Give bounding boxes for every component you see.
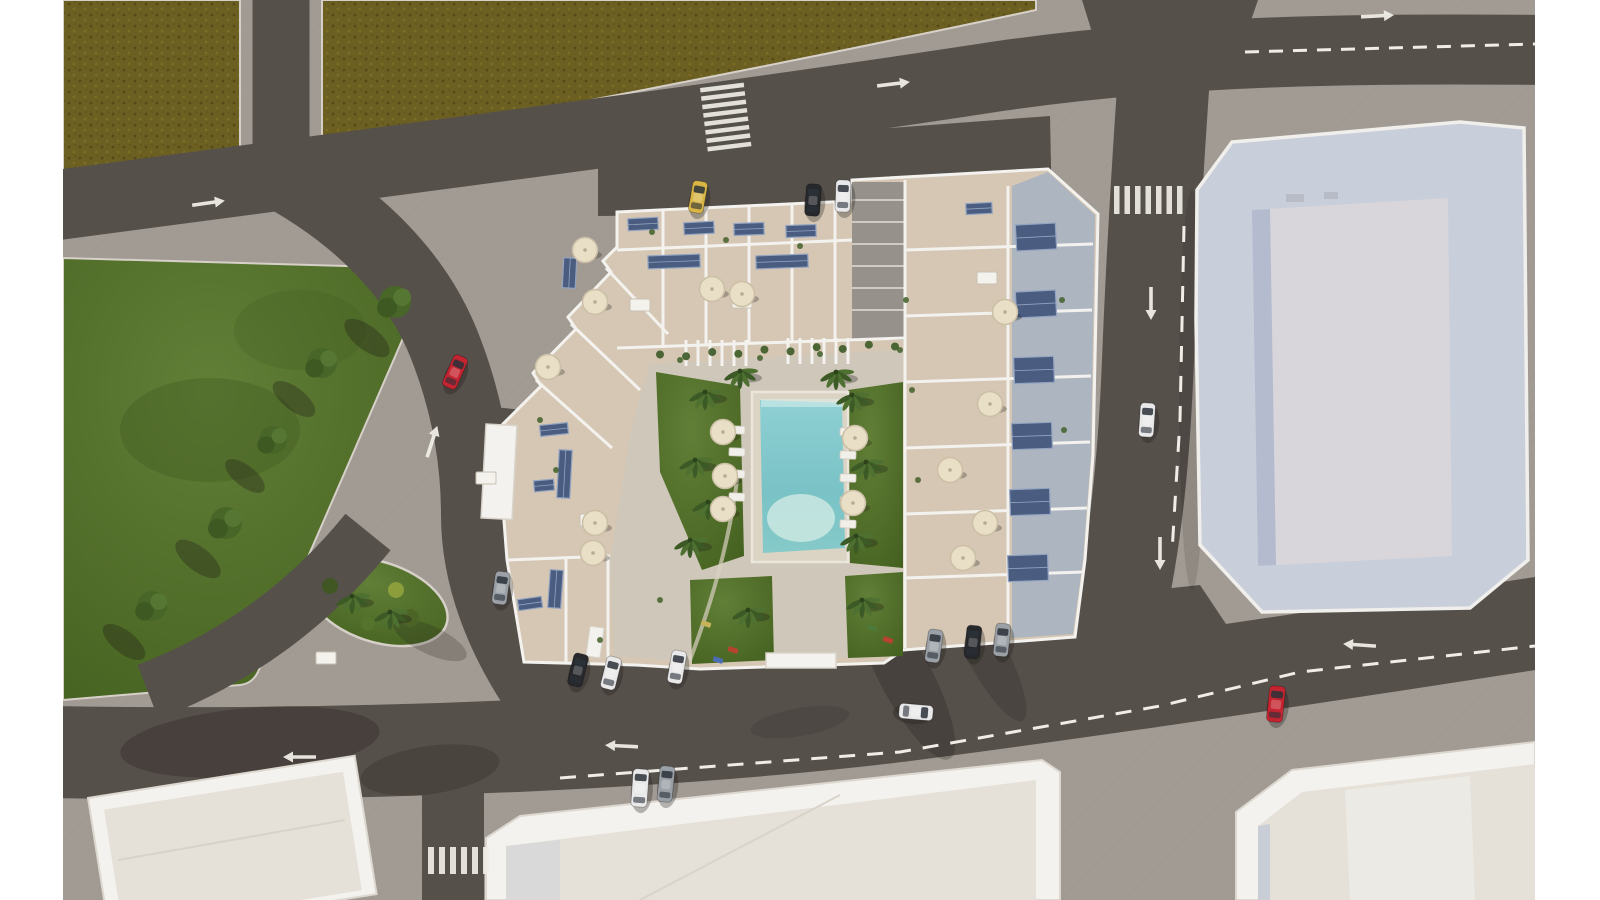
hedge-shrub — [734, 350, 742, 358]
hedge-shrub — [682, 352, 690, 360]
umbrella-pole — [1003, 310, 1007, 314]
terrace-table — [476, 472, 496, 484]
crosswalk-stripe — [1125, 186, 1131, 214]
table-top — [977, 272, 997, 284]
sun-lounger — [840, 451, 856, 460]
solar-panel — [628, 217, 659, 231]
umbrella-pole — [851, 501, 855, 505]
crosswalk-stripe — [428, 847, 434, 874]
crosswalk-stripe — [1135, 186, 1141, 214]
car-rear-window — [837, 202, 848, 208]
crosswalk-stripe — [450, 847, 456, 874]
crosswalk-stripe — [1177, 186, 1183, 214]
terrace-plant — [817, 351, 823, 357]
solar-panel — [734, 222, 764, 235]
car-windshield — [1142, 408, 1153, 416]
solar-panel — [557, 450, 572, 499]
palm-crown — [703, 390, 708, 395]
tree-canopy — [135, 602, 154, 621]
terrace-plant — [903, 297, 909, 303]
pool-steps — [761, 399, 842, 407]
terrace-table — [977, 272, 997, 284]
car-rear-window — [966, 648, 978, 655]
terrace-plant — [649, 229, 655, 235]
solar-panel — [1012, 422, 1053, 449]
car-rear-window — [659, 791, 671, 798]
umbrella-pole — [853, 436, 857, 440]
car-roof-highlight — [929, 641, 939, 651]
tree-canopy — [272, 428, 287, 443]
car-windshield — [968, 630, 980, 638]
car-roof-highlight — [496, 583, 506, 593]
car-roof-highlight — [635, 784, 646, 794]
car-rear-window — [633, 797, 645, 804]
bush — [322, 578, 338, 594]
roof-vent-2 — [1324, 192, 1338, 199]
umbrella-pole — [721, 430, 725, 434]
terrace-plant — [909, 387, 915, 393]
umbrella-pole — [583, 248, 587, 252]
terrace-plant — [597, 637, 603, 643]
palm-crown — [693, 458, 698, 463]
hedge-shrub — [839, 345, 847, 353]
umbrella-pole — [546, 365, 550, 369]
hedge-shrub — [865, 341, 873, 349]
car-windshield — [1271, 690, 1284, 698]
solar-panel — [684, 221, 715, 235]
car-rear-window — [1141, 427, 1152, 434]
palm-crown — [860, 598, 865, 603]
car-rear-window — [903, 705, 910, 716]
service-alley — [852, 182, 905, 340]
table-top — [630, 299, 650, 311]
palm-crown — [350, 594, 355, 599]
tree-canopy — [377, 298, 397, 318]
palm-crown — [688, 538, 693, 543]
tree-canopy — [151, 593, 168, 610]
terrace-plant — [915, 477, 921, 483]
hedge-shrub — [813, 343, 821, 351]
crosswalk-stripe — [483, 847, 489, 874]
crosswalk-stripe — [1156, 186, 1162, 214]
car-roof-highlight — [997, 636, 1007, 646]
solar-panel — [1015, 290, 1056, 318]
crosswalk-stripe — [1167, 186, 1173, 214]
car-roof-highlight — [911, 707, 921, 717]
roof-shade-west — [506, 840, 560, 900]
car-roof-highlight — [693, 192, 703, 202]
umbrella-pole — [593, 521, 597, 525]
car-windshield — [635, 774, 647, 782]
terrace-plant — [677, 357, 683, 363]
solar-panel — [548, 570, 564, 609]
scene-svg — [0, 0, 1600, 900]
terrace-table — [630, 299, 650, 311]
building-top-right-roof — [1252, 198, 1452, 566]
car-rear-window — [995, 646, 1007, 653]
solar-panel — [786, 224, 816, 237]
tree-canopy — [208, 519, 228, 539]
car-roof-highlight — [1271, 699, 1282, 709]
palm-crown — [738, 369, 743, 374]
aerial-render: Aerial 3D architectural render of a resi… — [0, 0, 1600, 900]
umbrella-pole — [710, 287, 714, 291]
pool-shallow-end — [767, 494, 835, 542]
tree-canopy — [257, 436, 274, 453]
palm-crown — [388, 610, 393, 615]
umbrella-pole — [721, 507, 725, 511]
crosswalk-stripe — [472, 847, 478, 874]
left-margin — [0, 0, 63, 900]
crosswalk-stripe — [1146, 186, 1152, 214]
umbrella-pole — [591, 551, 595, 555]
umbrella-pole — [961, 556, 965, 560]
tree-canopy — [224, 509, 242, 527]
car-roof-highlight — [1142, 416, 1152, 426]
palm-crown — [850, 393, 855, 398]
car-rear-window — [807, 206, 818, 213]
sun-lounger — [840, 474, 856, 483]
terrace-table — [316, 652, 336, 664]
umbrella-pole — [948, 468, 952, 472]
tree-canopy — [305, 359, 324, 378]
hedge-shrub — [787, 347, 795, 355]
solar-panel — [562, 258, 577, 289]
tree-canopy — [393, 288, 411, 306]
building-top-right — [1196, 122, 1528, 612]
umbrella-pole — [983, 521, 987, 525]
terrace-plant — [1059, 297, 1065, 303]
car-roof-highlight — [968, 638, 978, 648]
terrace-plant — [797, 243, 803, 249]
solar-panel — [1014, 356, 1055, 383]
palm-crown — [834, 370, 839, 375]
solar-panel — [756, 254, 808, 269]
car-rear-window — [1269, 711, 1282, 718]
solar-panel — [1010, 488, 1051, 515]
hedge-shrub — [708, 348, 716, 356]
solar-panel — [966, 202, 993, 214]
entrance-canopy — [766, 653, 836, 668]
table-top — [316, 652, 336, 664]
hedge-shrub — [760, 346, 768, 354]
roof-vent — [1286, 194, 1304, 202]
solar-panel — [534, 479, 555, 492]
palm-crown — [854, 534, 859, 539]
terrace-plant — [757, 355, 763, 361]
car-roof-highlight — [808, 196, 818, 206]
solar-panel — [648, 254, 700, 269]
swimming-pool — [752, 392, 848, 562]
tree-canopy — [321, 350, 338, 367]
umbrella-pole — [723, 474, 727, 478]
hedge-shrub — [656, 351, 664, 359]
table-top — [476, 472, 496, 484]
terrace-plant — [723, 237, 729, 243]
car-roof-highlight — [838, 192, 847, 201]
palm-crown — [706, 500, 711, 505]
palm-crown — [864, 460, 869, 465]
umbrella-pole — [740, 292, 744, 296]
bush — [361, 617, 375, 631]
solar-panel — [540, 423, 569, 437]
sun-lounger — [729, 448, 745, 457]
terrace-plant — [537, 417, 543, 423]
umbrella-pole — [988, 402, 992, 406]
palm-crown — [746, 608, 751, 613]
car-roof-highlight — [672, 662, 682, 672]
crosswalk-stripe — [461, 847, 467, 874]
crosswalk-stripe — [439, 847, 445, 874]
car-windshield — [808, 189, 819, 197]
terrace-plant — [897, 347, 903, 353]
roof-shade-west-2 — [1258, 824, 1270, 900]
car-windshield — [921, 707, 929, 719]
terrace-plant — [553, 467, 559, 473]
terrace-plant — [1061, 427, 1067, 433]
car-windshield — [997, 628, 1009, 636]
solar-panel — [1015, 223, 1056, 251]
solar-panel — [1008, 554, 1049, 581]
car-windshield — [838, 185, 849, 192]
umbrella-pole — [593, 300, 597, 304]
crosswalk-stripe — [1114, 186, 1120, 214]
roof-raised-block — [1345, 776, 1475, 900]
bush — [388, 582, 404, 598]
car-roof-highlight — [661, 780, 671, 790]
car-windshield — [661, 770, 673, 778]
sun-lounger — [840, 520, 856, 529]
terrace-plant — [657, 597, 663, 603]
right-margin — [1535, 0, 1600, 900]
